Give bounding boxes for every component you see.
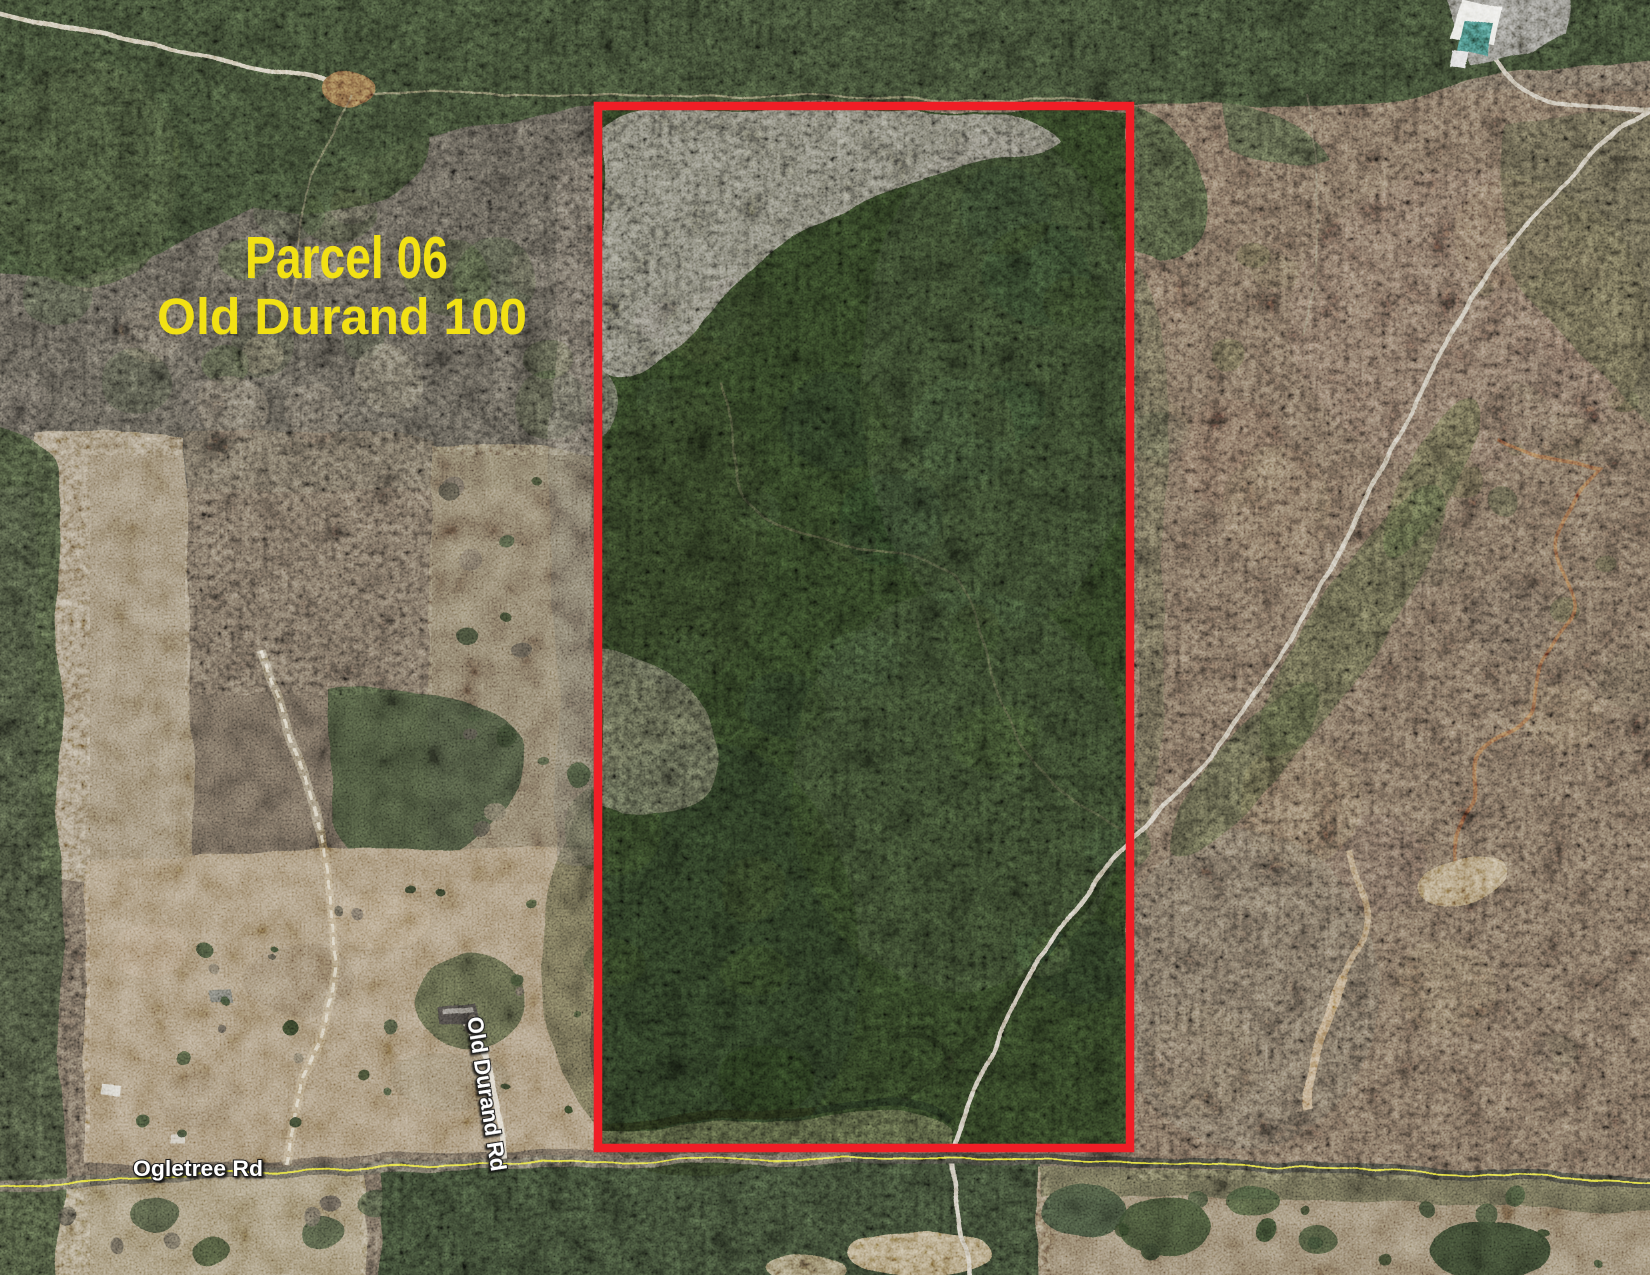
svg-text:Old Durand 100: Old Durand 100: [157, 288, 527, 345]
svg-text:Parcel 06: Parcel 06: [245, 225, 448, 291]
svg-text:Ogletree Rd: Ogletree Rd: [133, 1156, 263, 1181]
